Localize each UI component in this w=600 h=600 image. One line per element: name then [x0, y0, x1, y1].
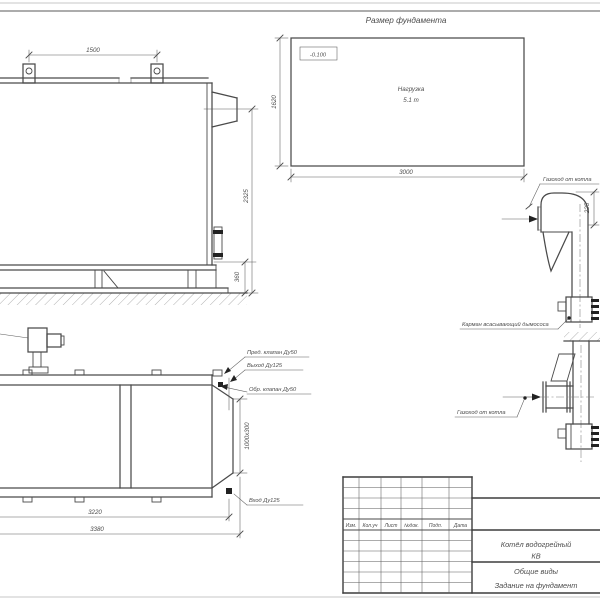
boiler-side-view: 1500 — [0, 47, 258, 305]
product-name-line2: КВ — [531, 552, 540, 561]
exhauster-flange-box-upper — [558, 297, 599, 322]
label-outlet: Выход Ду125 — [230, 363, 303, 382]
label-safety-valve: Пред. клапан Ду50 — [224, 350, 309, 374]
dim-foundation-width: 1620 — [271, 35, 288, 169]
dim-3220-text: 3220 — [88, 509, 102, 516]
flue-upper-label: Газоход от котла — [543, 177, 592, 183]
dim-225-text: 225 — [584, 202, 591, 214]
elevation-text: -0.100 — [310, 53, 327, 59]
lifting-lug-right — [151, 64, 163, 83]
pocket-label: Карман всасывающий дымососа — [462, 321, 549, 328]
svg-text:Вход Ду125: Вход Ду125 — [249, 498, 281, 504]
dim-base-height: 360 — [214, 259, 256, 296]
product-name-line1: Котёл водогрейный — [501, 540, 572, 549]
ground-hatch — [0, 293, 247, 305]
dim-foundation-length: 3000 — [288, 169, 527, 182]
col-izm: Изм. — [346, 523, 357, 529]
suction-pocket — [538, 193, 588, 328]
foundation-plan-view: Размер фундамента -0.100 Нагрузка 5.1 т … — [271, 16, 527, 182]
dim-1500-text: 1500 — [86, 47, 100, 54]
pocket-label-group: Карман всасывающий дымососа — [460, 316, 571, 329]
col-koluch: Кол.уч — [363, 523, 378, 529]
dim-1620-text: 1620 — [271, 95, 278, 109]
flue-duct-upper-view: Газоход от котла — [460, 177, 599, 329]
load-label: Нагрузка — [398, 86, 425, 93]
drawing-sheet: 1500 — [0, 0, 600, 600]
foundation-title: Размер фундамента — [366, 16, 447, 25]
dim-2325-text: 2325 — [243, 189, 250, 204]
flue-lower-label-group: Газоход от котла — [455, 400, 524, 417]
flue-lower-label: Газоход от котла — [457, 410, 506, 416]
dim-1000x300-text: 1000х300 — [244, 422, 251, 450]
support-frame — [0, 265, 228, 293]
return-pipe-flange — [213, 227, 223, 259]
flue-duct-lower-view: Газоход от котла — [455, 332, 600, 462]
exhauster-motor — [0, 328, 64, 373]
svg-text:Пред. клапан Ду50: Пред. клапан Ду50 — [247, 350, 298, 356]
technical-drawing: 1500 — [0, 0, 600, 600]
col-podp: Подп. — [429, 523, 442, 529]
dim-length-inner: 3220 — [0, 499, 232, 521]
dim-360-text: 360 — [234, 271, 241, 282]
svg-text:Выход Ду125: Выход Ду125 — [247, 363, 283, 369]
load-value: 5.1 т — [403, 97, 418, 104]
dim-3380-text: 3380 — [90, 526, 104, 533]
boiler-plan-view: 1000х300 Пред. клапан Ду50 Выход Ду125 О… — [0, 328, 311, 538]
dim-rear-opening: 1000х300 — [233, 396, 251, 476]
col-data: Дата — [453, 523, 467, 529]
col-ndok: №док. — [404, 523, 419, 529]
dim-3000-text: 3000 — [399, 169, 413, 176]
doc-type-line1: Общие виды — [514, 567, 559, 576]
label-check-valve: Обр. клапан Ду50 — [220, 384, 311, 394]
lifting-lug-left — [23, 64, 35, 83]
label-inlet: Вход Ду125 — [226, 488, 303, 505]
title-block: Изм. Кол.уч Лист №док. Подп. Дата Котёл … — [343, 477, 600, 593]
doc-type-line2: Задание на фундамент — [495, 581, 578, 590]
svg-text:Обр. клапан Ду50: Обр. клапан Ду50 — [249, 387, 297, 393]
exhauster-flange-box-lower — [558, 424, 599, 449]
dim-lug-spacing: 1500 — [26, 47, 160, 62]
elevation-mark: -0.100 — [300, 47, 337, 60]
dim-length-total: 3380 — [0, 477, 243, 538]
col-list: Лист — [384, 523, 398, 529]
